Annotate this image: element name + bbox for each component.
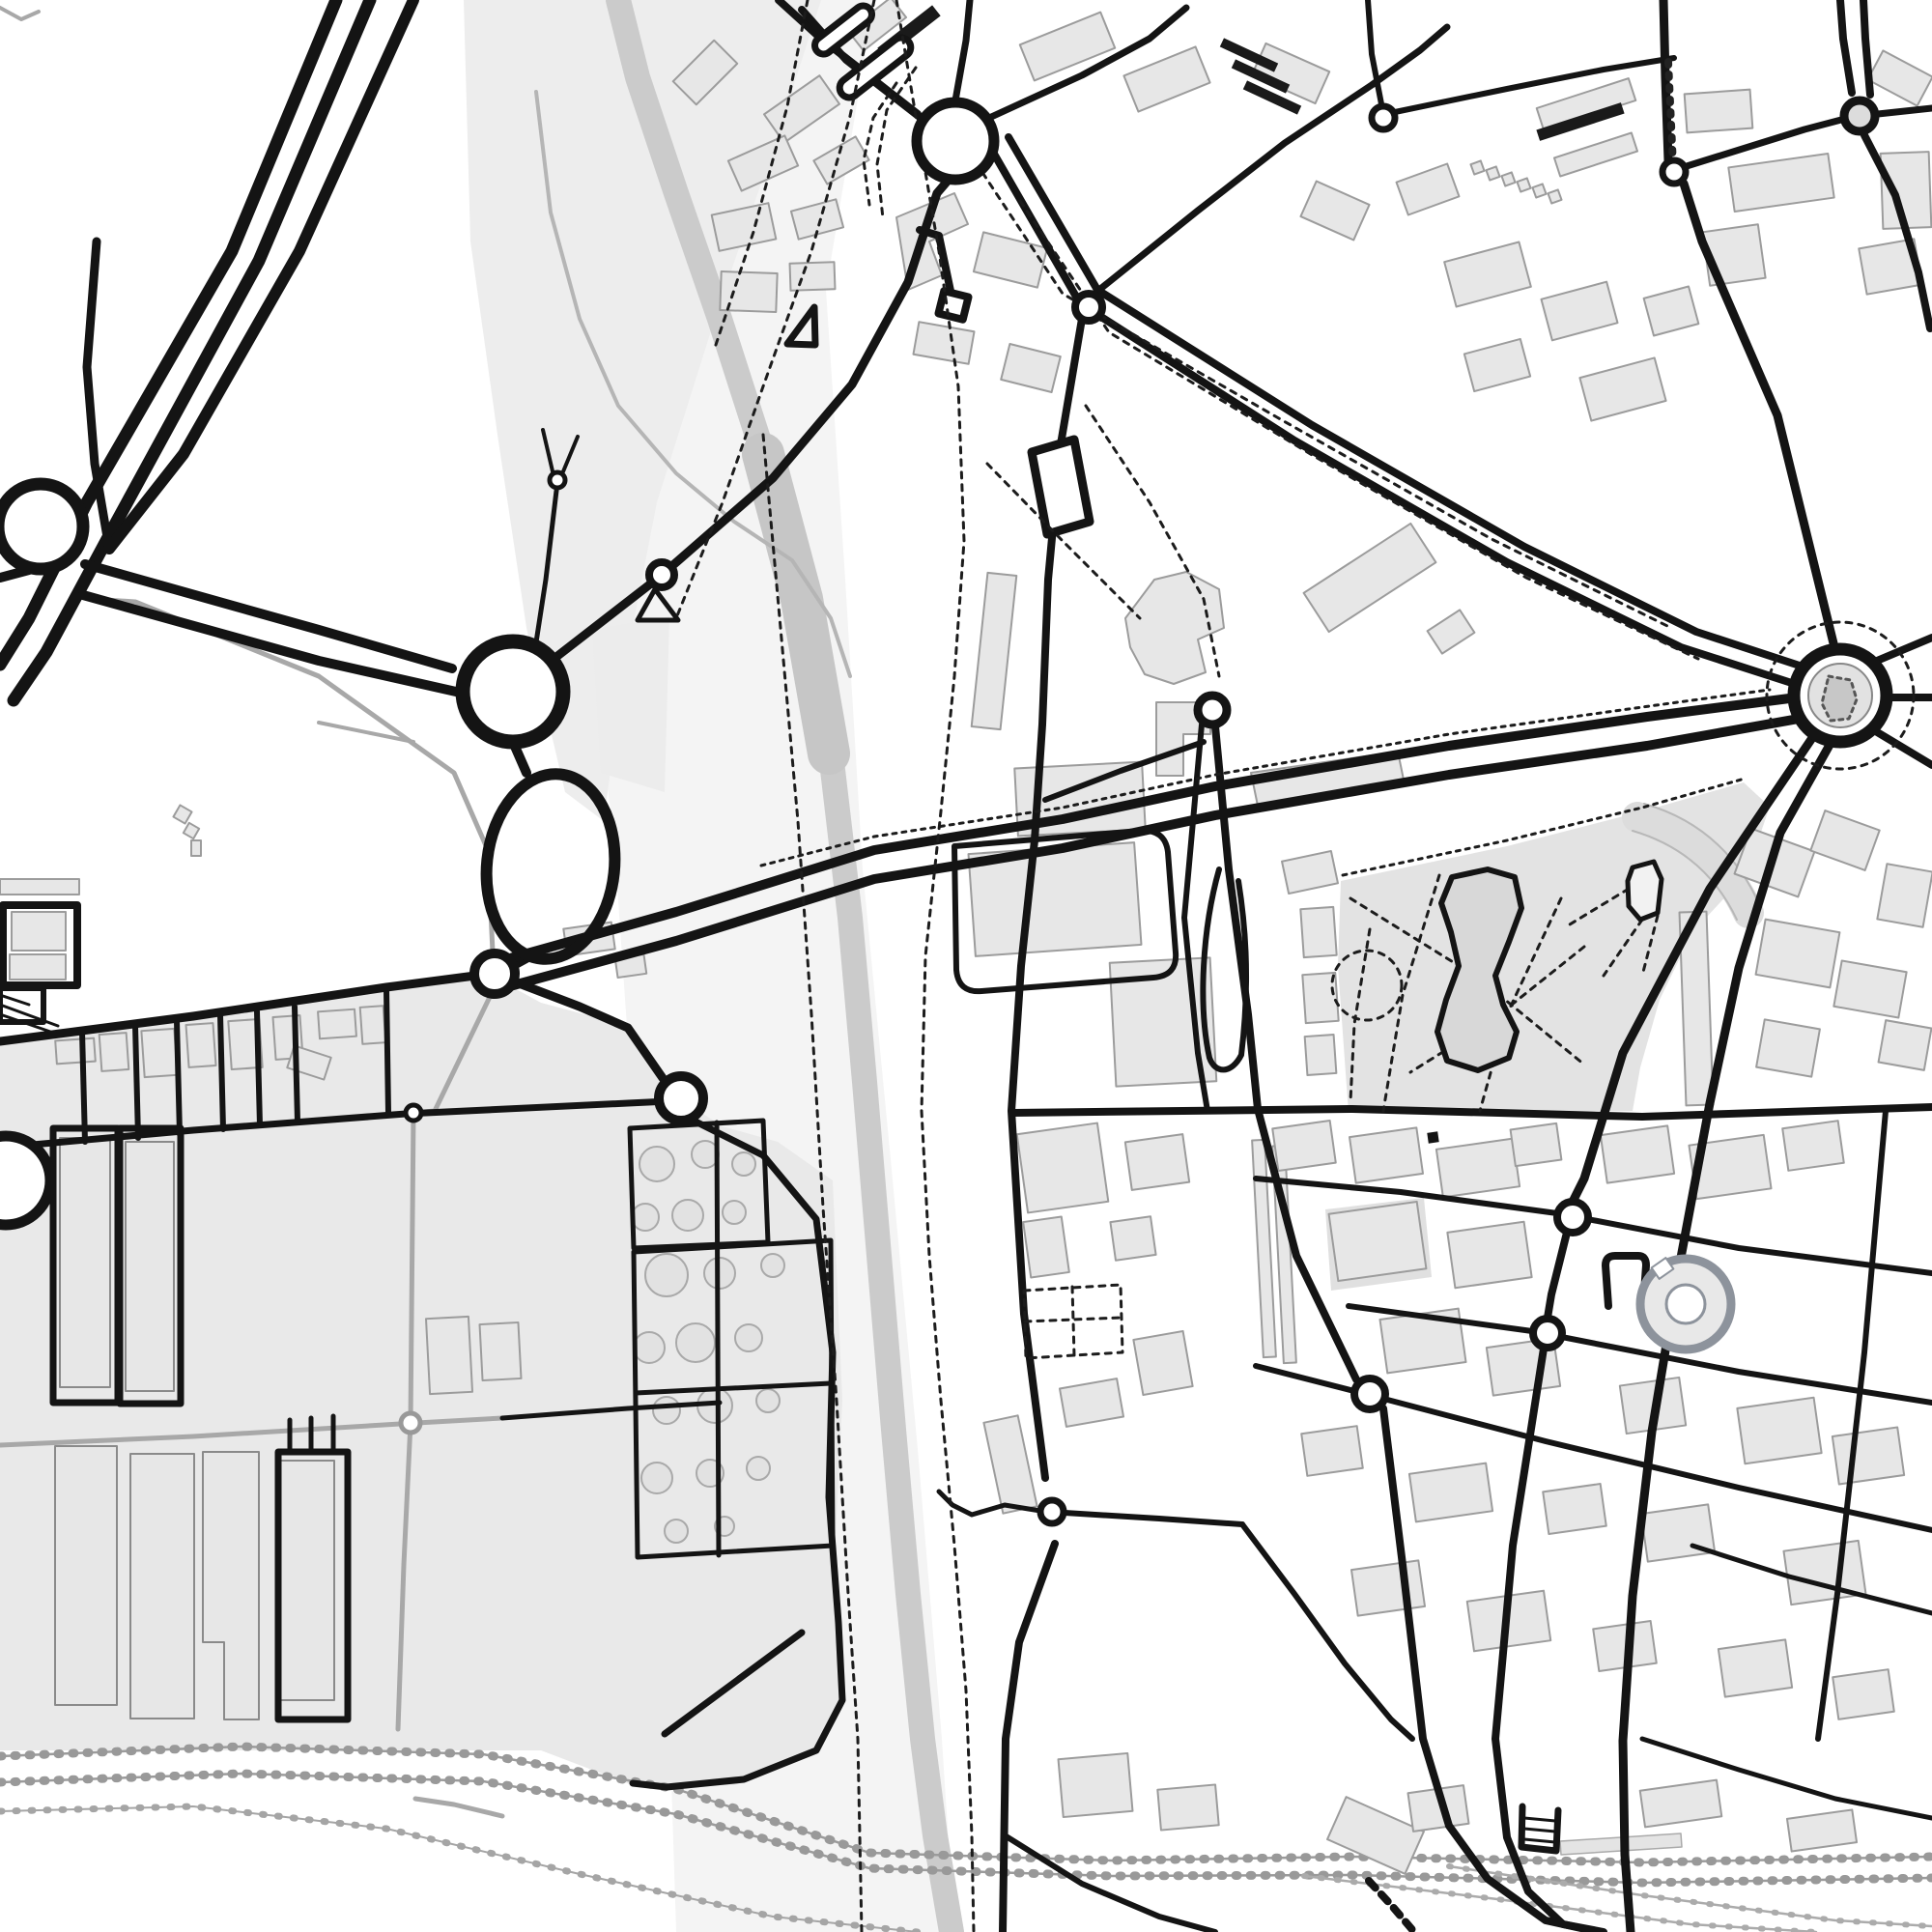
buildings-feature bbox=[60, 1138, 110, 1387]
buildings-feature bbox=[1447, 1222, 1531, 1289]
buildings-feature bbox=[1301, 1426, 1363, 1476]
buildings-feature bbox=[1541, 282, 1617, 341]
roads-feature bbox=[135, 1026, 138, 1138]
roads-feature bbox=[938, 291, 968, 320]
buildings-feature bbox=[55, 1038, 96, 1065]
buildings-feature bbox=[747, 1457, 770, 1480]
buildings-feature bbox=[1023, 1216, 1069, 1277]
roads-feature bbox=[1877, 638, 1932, 661]
junctions-feature bbox=[1040, 1500, 1064, 1523]
buildings-feature bbox=[735, 1324, 762, 1351]
buildings-feature bbox=[12, 912, 66, 951]
roads-feature bbox=[1524, 1818, 1555, 1821]
buildings-feature bbox=[99, 1033, 129, 1071]
roads-feature bbox=[1009, 137, 1808, 668]
buildings-feature bbox=[1486, 166, 1499, 180]
buildings-feature bbox=[1728, 154, 1833, 212]
junctions-feature bbox=[0, 1136, 50, 1225]
buildings-feature bbox=[1579, 357, 1665, 420]
buildings-feature bbox=[318, 1009, 356, 1039]
buildings-feature bbox=[1123, 46, 1209, 111]
buildings-feature bbox=[1833, 1428, 1904, 1485]
railway bbox=[0, 1747, 1932, 1932]
buildings-feature bbox=[1810, 810, 1879, 870]
junctions-feature bbox=[1666, 1285, 1705, 1323]
buildings-feature bbox=[1133, 1331, 1192, 1395]
street-map bbox=[0, 0, 1932, 1932]
buildings-feature bbox=[1060, 1378, 1123, 1427]
junctions-feature bbox=[1354, 1378, 1385, 1409]
buildings-feature bbox=[1300, 182, 1369, 241]
roads-feature bbox=[991, 149, 1801, 686]
buildings-feature bbox=[55, 1446, 117, 1705]
junctions-feature bbox=[1198, 696, 1227, 724]
junctions-feature bbox=[463, 641, 563, 742]
buildings-feature bbox=[1501, 172, 1515, 185]
buildings-feature bbox=[1511, 1123, 1562, 1166]
junctions-feature bbox=[1628, 862, 1662, 920]
buildings-feature bbox=[1304, 524, 1436, 632]
buildings-feature bbox=[761, 1254, 784, 1277]
roads-feature bbox=[717, 1122, 719, 1555]
gray-roads-feature bbox=[415, 1799, 502, 1816]
buildings-feature bbox=[732, 1152, 755, 1176]
buildings-feature bbox=[1833, 960, 1906, 1017]
roads-feature bbox=[1524, 1839, 1555, 1842]
buildings-feature bbox=[1517, 178, 1530, 191]
map-canvas[interactable] bbox=[0, 0, 1932, 1932]
buildings-feature bbox=[278, 1461, 334, 1700]
buildings-feature bbox=[632, 1204, 659, 1231]
buildings-feature bbox=[1125, 1134, 1189, 1190]
roads-feature bbox=[257, 1011, 260, 1125]
buildings-feature bbox=[1436, 1139, 1520, 1198]
roads-feature bbox=[1368, 0, 1383, 114]
buildings-feature bbox=[645, 1254, 688, 1296]
buildings-feature bbox=[1282, 851, 1338, 894]
buildings-feature bbox=[723, 1201, 746, 1224]
junctions-feature bbox=[406, 1105, 421, 1121]
buildings-feature bbox=[480, 1322, 522, 1380]
roads-feature bbox=[1668, 62, 1673, 166]
buildings-feature bbox=[130, 1454, 194, 1719]
buildings-feature bbox=[1782, 1121, 1844, 1171]
junctions-feature bbox=[659, 1076, 703, 1121]
roads-feature bbox=[955, 0, 970, 100]
junctions-feature bbox=[1844, 100, 1875, 131]
buildings-feature bbox=[1879, 1020, 1932, 1070]
junctions-feature bbox=[1427, 1131, 1438, 1143]
junctions-feature bbox=[1075, 294, 1102, 321]
buildings-feature bbox=[1350, 1127, 1423, 1182]
buildings-feature bbox=[756, 1389, 780, 1412]
buildings-feature bbox=[1532, 184, 1546, 197]
buildings-feature bbox=[634, 1332, 665, 1363]
buildings-feature bbox=[1737, 1398, 1821, 1464]
roads-feature bbox=[386, 990, 388, 1113]
buildings-feature bbox=[1428, 610, 1475, 653]
roads-feature bbox=[220, 1015, 223, 1129]
buildings-feature bbox=[1833, 1669, 1894, 1719]
junctions-feature bbox=[1533, 1319, 1562, 1348]
buildings-feature bbox=[1305, 1035, 1337, 1075]
buildings-feature bbox=[983, 1415, 1037, 1513]
buildings-feature bbox=[1300, 907, 1336, 957]
buildings-feature bbox=[974, 232, 1047, 287]
roads-feature bbox=[83, 595, 456, 692]
buildings-feature bbox=[641, 1463, 672, 1493]
roads-feature bbox=[0, 995, 29, 1005]
buildings-feature bbox=[1329, 1202, 1427, 1281]
buildings-feature bbox=[1548, 189, 1561, 203]
junctions-feature bbox=[0, 484, 83, 569]
roads-feature bbox=[85, 564, 452, 668]
buildings-feature bbox=[191, 840, 201, 856]
roads-feature bbox=[177, 1021, 180, 1134]
buildings-feature bbox=[972, 573, 1017, 729]
roads-feature bbox=[1065, 1513, 1242, 1524]
buildings-feature bbox=[676, 1323, 715, 1362]
roads-feature bbox=[1863, 0, 1870, 95]
buildings-feature bbox=[1059, 1753, 1133, 1817]
buildings-feature bbox=[1644, 286, 1699, 335]
buildings-feature bbox=[1601, 1125, 1674, 1182]
roads-feature bbox=[1818, 1111, 1886, 1739]
buildings-feature bbox=[1157, 1784, 1218, 1830]
buildings-feature bbox=[1685, 90, 1753, 133]
buildings-feature bbox=[1110, 1216, 1155, 1260]
gray-roads-feature bbox=[0, 8, 39, 19]
buildings-feature bbox=[653, 1397, 680, 1424]
buildings-feature bbox=[1756, 920, 1840, 988]
junctions-feature bbox=[917, 102, 994, 180]
buildings-feature bbox=[173, 805, 191, 823]
roads-feature bbox=[1395, 58, 1674, 112]
buildings-feature bbox=[184, 823, 199, 838]
buildings-feature bbox=[1017, 1123, 1109, 1213]
buildings-feature bbox=[1470, 160, 1484, 174]
buildings-feature bbox=[1877, 864, 1932, 926]
zones-feature bbox=[592, 616, 669, 792]
junctions-feature bbox=[1372, 106, 1395, 129]
buildings-feature bbox=[665, 1520, 688, 1543]
buildings-feature bbox=[360, 1006, 386, 1044]
roads-feature bbox=[1878, 108, 1932, 114]
buildings-feature bbox=[913, 322, 974, 364]
buildings-feature bbox=[639, 1147, 674, 1181]
buildings-feature bbox=[1554, 133, 1637, 177]
buildings-feature bbox=[0, 879, 79, 895]
buildings-feature bbox=[1719, 1639, 1792, 1696]
buildings-feature bbox=[1444, 241, 1531, 306]
junctions-feature bbox=[1557, 1202, 1588, 1233]
junctions-feature bbox=[474, 953, 515, 994]
buildings-feature bbox=[1272, 1121, 1336, 1171]
buildings-feature bbox=[1464, 339, 1530, 391]
roads-feature bbox=[1005, 1835, 1215, 1932]
buildings-feature bbox=[1787, 1809, 1857, 1851]
buildings-feature bbox=[790, 262, 836, 291]
buildings-feature bbox=[1351, 1560, 1425, 1615]
roads-feature bbox=[1548, 1233, 1567, 1318]
buildings-feature bbox=[1641, 1504, 1715, 1561]
roads-feature bbox=[109, 0, 413, 549]
buildings-feature bbox=[1409, 1463, 1492, 1522]
buildings-feature bbox=[10, 954, 66, 980]
roads-feature bbox=[1242, 1524, 1412, 1739]
buildings-feature bbox=[426, 1317, 472, 1394]
junctions-feature bbox=[1662, 160, 1686, 184]
buildings-feature bbox=[1640, 1780, 1722, 1828]
buildings-feature bbox=[185, 1023, 215, 1067]
roads-feature bbox=[1012, 1107, 1932, 1117]
buildings-feature bbox=[1397, 164, 1460, 215]
dotted-paths-feature bbox=[1072, 1287, 1074, 1355]
junctions-feature bbox=[401, 1413, 420, 1433]
buildings-feature bbox=[1001, 344, 1061, 392]
buildings-feature bbox=[1756, 1019, 1820, 1076]
roads-feature bbox=[295, 1007, 298, 1122]
buildings-feature bbox=[1543, 1484, 1606, 1534]
buildings-feature bbox=[672, 1200, 703, 1231]
buildings-feature bbox=[126, 1142, 174, 1391]
roads-feature bbox=[1524, 1829, 1555, 1832]
junctions-feature bbox=[649, 562, 674, 587]
buildings-feature bbox=[1020, 13, 1115, 81]
junctions-feature bbox=[550, 472, 565, 488]
buildings-feature bbox=[1867, 50, 1932, 105]
roads-feature bbox=[1840, 0, 1852, 93]
buildings-feature bbox=[141, 1029, 177, 1077]
